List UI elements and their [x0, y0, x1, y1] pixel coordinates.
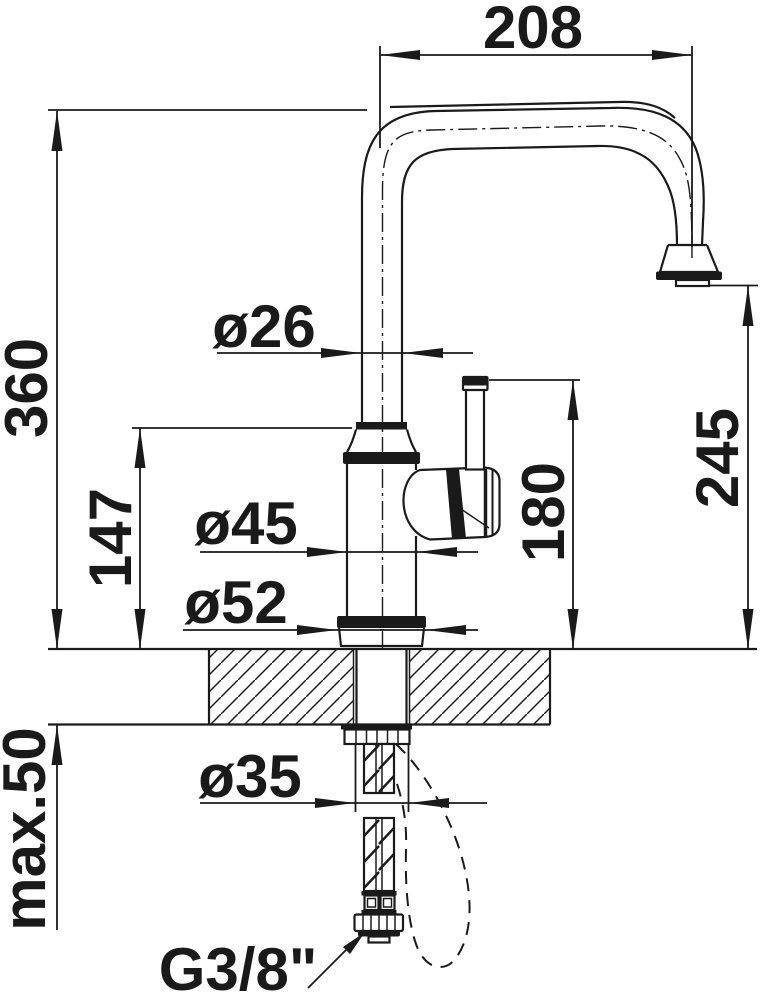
dim-label-pipe-diameter: ø26 [212, 293, 315, 360]
dim-lever-top-height: 180 [489, 380, 580, 649]
dim-label-base-diameter: ø52 [184, 569, 287, 636]
spout [362, 102, 722, 422]
dim-label-spout-reach: 208 [483, 0, 583, 61]
countertop [48, 649, 757, 725]
dim-label-overall-height: 360 [0, 338, 60, 438]
dim-label-outlet-height: 245 [684, 408, 751, 508]
faucet-technical-drawing: 208 360 147 max.50 ø26 ø45 [0, 0, 762, 1000]
dim-outlet-height: 245 [684, 286, 758, 650]
dim-label-body-top-height: 147 [77, 488, 144, 588]
flare-top-band [356, 422, 407, 430]
drawing-svg: 208 360 147 max.50 ø26 ø45 [0, 0, 762, 1000]
dim-label-max-counter-thickness: max.50 [0, 727, 58, 931]
callout-supply-thread: G3/8" [159, 932, 365, 1000]
dim-label-body-diameter: ø45 [194, 490, 297, 557]
dim-max-counter-thickness: max.50 [0, 725, 209, 931]
dim-spout-reach: 208 [380, 0, 692, 247]
aerator [656, 245, 722, 286]
dim-base-diameter: ø52 [183, 569, 478, 636]
handle-lever-rod [466, 390, 484, 470]
faucet-body [337, 422, 426, 646]
dim-label-lever-top-height: 180 [510, 462, 577, 562]
threaded-stud-lower [364, 818, 394, 891]
flare-seal-ring [343, 452, 420, 464]
dim-pipe-diameter: ø26 [212, 293, 473, 360]
dim-label-supply-thread: G3/8" [159, 936, 318, 1000]
centerline [383, 126, 693, 648]
threaded-stud-upper [364, 744, 394, 793]
dim-label-mounting-hole-diameter: ø35 [198, 743, 301, 810]
dim-mounting-hole-diameter: ø35 [198, 743, 487, 812]
mounting-shank [341, 724, 470, 967]
base-seal-ring [337, 616, 426, 628]
supply-hose-loop [396, 744, 470, 967]
